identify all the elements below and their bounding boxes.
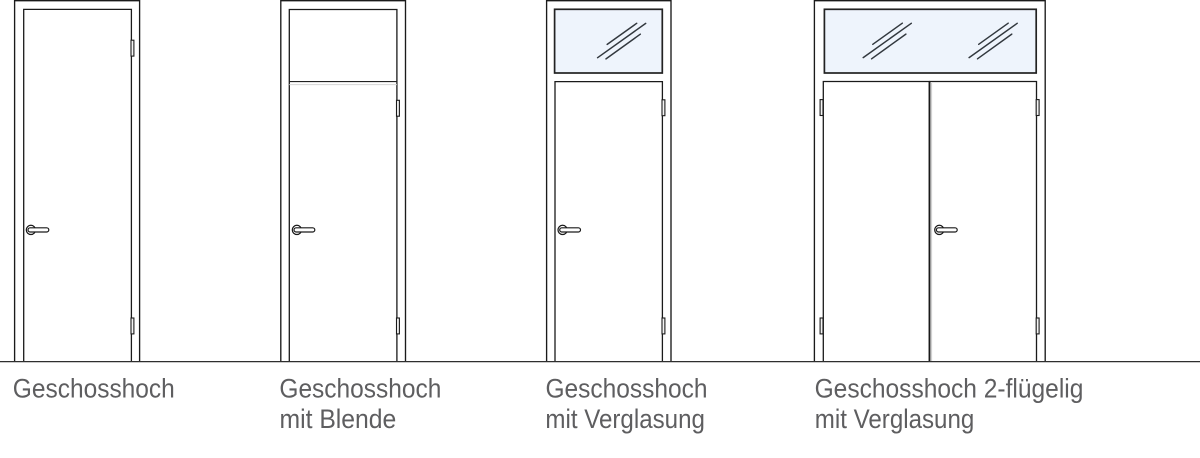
svg-text:Geschosshoch: Geschosshoch (279, 374, 441, 404)
svg-text:mit Blende: mit Blende (280, 404, 397, 434)
svg-text:Geschosshoch: Geschosshoch (546, 374, 708, 404)
svg-text:mit Verglasung: mit Verglasung (815, 404, 975, 434)
svg-text:Geschosshoch: Geschosshoch (13, 374, 175, 404)
svg-text:Geschosshoch 2-flügelig: Geschosshoch 2-flügelig (815, 374, 1084, 404)
svg-text:mit Verglasung: mit Verglasung (545, 404, 705, 434)
